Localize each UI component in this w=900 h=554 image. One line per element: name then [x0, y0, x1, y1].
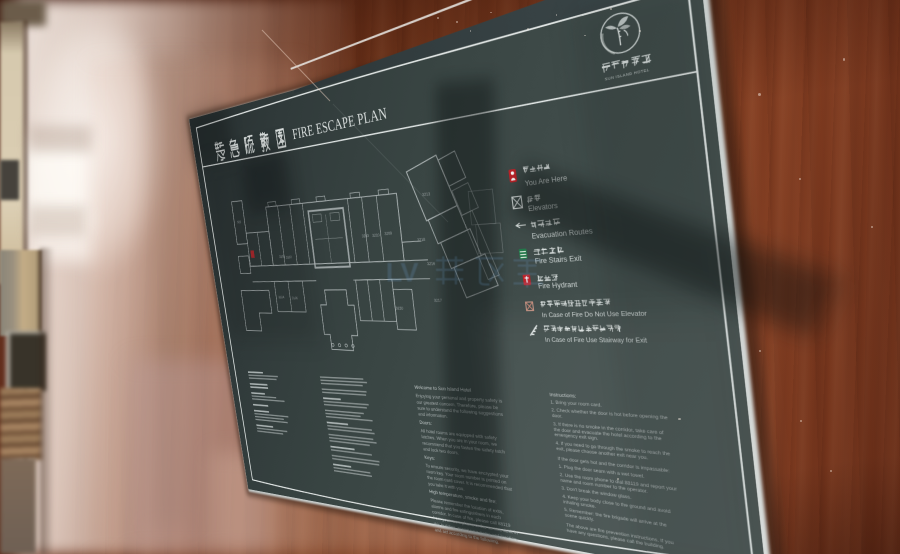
- svg-text:LV: LV: [386, 256, 419, 287]
